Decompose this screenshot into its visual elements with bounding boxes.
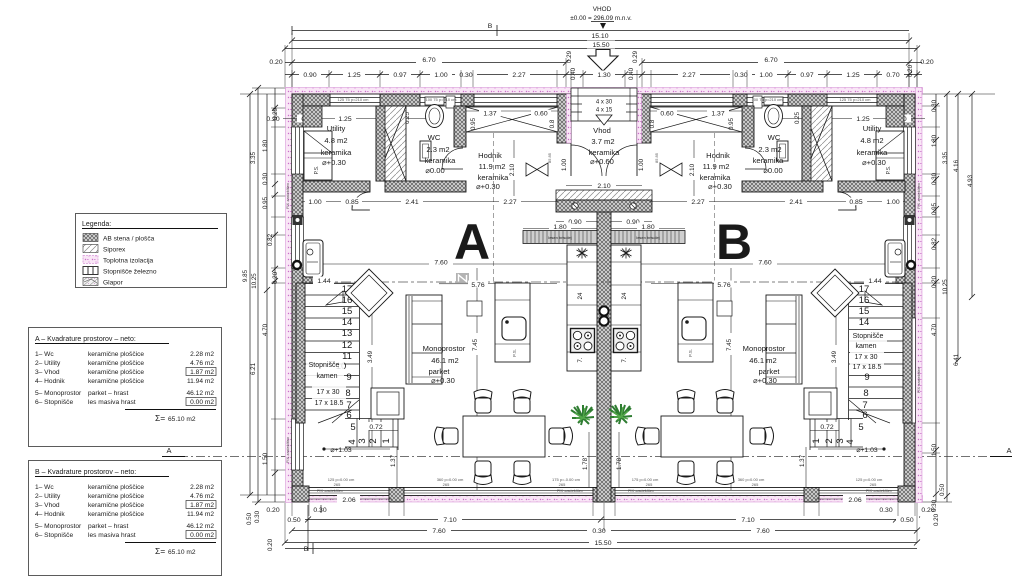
svg-text:1.50: 1.50 [262,452,269,465]
svg-text:keramika: keramika [857,148,889,157]
svg-text:0.50: 0.50 [939,483,946,496]
svg-text:2.27: 2.27 [691,199,704,206]
svg-text:0.95: 0.95 [262,196,269,209]
svg-text:1.44: 1.44 [868,278,881,285]
svg-text:0.8: 0.8 [649,119,656,128]
svg-text:P.S.: P.S. [688,349,693,357]
svg-text:Utility: Utility [327,124,346,133]
svg-text:0.60: 0.60 [534,111,547,118]
svg-text:14: 14 [859,317,870,328]
svg-text:0.25: 0.25 [794,111,801,124]
svg-text:⌀+0.30: ⌀+0.30 [708,182,732,191]
svg-text:0.30: 0.30 [931,172,938,185]
svg-text:A: A [454,214,490,270]
svg-text:0.40: 0.40 [628,67,635,80]
svg-text:2.3 m2: 2.3 m2 [426,145,449,154]
svg-text:1.37: 1.37 [711,111,724,118]
svg-text:⌀0.00: ⌀0.00 [425,166,444,175]
svg-text:6: 6 [862,410,867,421]
svg-text:15: 15 [859,306,870,317]
svg-text:WC: WC [768,133,781,142]
svg-text:1.37: 1.37 [483,111,496,118]
svg-text:B: B [488,23,493,30]
svg-text:1.87 m2: 1.87 m2 [190,369,214,376]
svg-text:1.30: 1.30 [597,72,610,79]
svg-text:3.35: 3.35 [250,151,257,164]
svg-text:Hodnik: Hodnik [706,151,730,160]
svg-text:4.76 m2: 4.76 m2 [190,493,214,500]
svg-text:1.80: 1.80 [931,134,938,147]
svg-text:2.27: 2.27 [503,199,516,206]
svg-text:1.00: 1.00 [561,158,568,171]
svg-text:parket: parket [428,367,450,376]
svg-text:keramične ploščice: keramične ploščice [88,351,144,358]
svg-text:FIX zasteklitev: FIX zasteklitev [317,488,343,493]
svg-text:1: 1 [811,438,822,443]
svg-text:⌀+0.60: ⌀+0.60 [590,157,614,166]
svg-text:FIX zasteklitev: FIX zasteklitev [916,367,921,393]
svg-text:3: 3 [357,438,368,443]
svg-text:10.25: 10.25 [942,279,949,295]
svg-text:2.10: 2.10 [509,163,516,176]
svg-text:1.80: 1.80 [641,224,654,231]
svg-text:lesen brisolej: lesen brisolej [636,235,659,240]
svg-text:1.00: 1.00 [759,72,772,79]
svg-text:17 x 30: 17 x 30 [317,389,340,396]
svg-text:2.41: 2.41 [405,199,418,206]
svg-text:Legenda:: Legenda: [82,221,111,228]
svg-text:±0.00 = 296.09 m.n.v.: ±0.00 = 296.09 m.n.v. [570,15,632,22]
svg-text:7.60: 7.60 [432,528,445,535]
svg-text:3: 3 [835,438,846,443]
svg-text:Toplotna izolacija: Toplotna izolacija [103,258,154,265]
svg-text:85 85: 85 85 [654,152,659,163]
svg-text:265: 265 [443,482,450,487]
svg-text:17 x 18.5: 17 x 18.5 [315,400,344,407]
svg-text:0.95: 0.95 [470,117,477,130]
svg-text:⌀+0.30: ⌀+0.30 [753,376,777,385]
svg-text:1.80: 1.80 [553,224,566,231]
svg-text:7.10: 7.10 [741,517,754,524]
svg-text:0.95: 0.95 [728,117,735,130]
svg-text:0.60: 0.60 [660,111,673,118]
svg-text:0.29: 0.29 [632,50,639,63]
svg-text:B: B [304,546,309,553]
svg-text:5: 5 [858,422,863,433]
svg-text:parket – hrast: parket – hrast [88,390,128,397]
svg-text:P.S.: P.S. [512,349,517,357]
svg-text:11.94 m2: 11.94 m2 [187,511,214,518]
svg-text:FIX zasteklitev: FIX zasteklitev [916,183,921,209]
svg-text:P.S.: P.S. [886,166,892,175]
svg-text:11.9 m2: 11.9 m2 [703,162,730,171]
svg-text:0.72: 0.72 [369,424,382,431]
svg-text:5: 5 [350,422,355,433]
svg-text:parket – hrast: parket – hrast [88,523,128,530]
svg-text:Vhod: Vhod [593,126,611,135]
svg-text:keramične ploščice: keramične ploščice [88,369,144,376]
svg-text:les masiva hrast: les masiva hrast [88,399,136,406]
svg-text:1: 1 [381,438,392,443]
svg-text:3.35: 3.35 [942,151,949,164]
svg-text:1.25: 1.25 [338,116,351,123]
svg-text:AB stena / plošča: AB stena / plošča [103,236,155,243]
svg-text:6– Stopnišče: 6– Stopnišče [35,399,73,406]
svg-text:Utility: Utility [863,124,882,133]
svg-text:46.1 m2: 46.1 m2 [431,356,458,365]
svg-text:0.90: 0.90 [303,72,316,79]
svg-text:⌀0.00: ⌀0.00 [763,166,782,175]
svg-text:1.80: 1.80 [262,139,269,152]
svg-text:keramika: keramika [425,156,457,165]
svg-text:10.25: 10.25 [251,273,258,289]
svg-text:keramika: keramika [753,156,785,165]
svg-text:265: 265 [559,482,566,487]
svg-text:125 75 p=210 cm: 125 75 p=210 cm [337,97,369,102]
svg-text:6.70: 6.70 [422,57,435,64]
svg-text:2: 2 [368,438,379,443]
svg-text:keramične ploščice: keramične ploščice [88,493,144,500]
svg-text:1.87 m2: 1.87 m2 [190,502,214,509]
svg-text:1.25: 1.25 [347,72,360,79]
svg-text:3– Vhod: 3– Vhod [35,369,60,376]
svg-text:0.29: 0.29 [566,50,573,63]
svg-text:100 75 p=210 cm: 100 75 p=210 cm [751,97,783,102]
svg-text:lesen brisolej: lesen brisolej [548,235,571,240]
svg-text:B: B [716,214,752,270]
svg-text:Stopnišče železno: Stopnišče železno [103,269,157,276]
svg-text:2– Utility: 2– Utility [35,493,61,500]
svg-text:P.S.: P.S. [314,166,320,175]
svg-text:0.20: 0.20 [933,513,940,526]
svg-text:1– Wc: 1– Wc [35,351,54,358]
svg-text:keramične ploščice: keramične ploščice [88,484,144,491]
svg-text:0.20: 0.20 [272,271,279,284]
svg-text:9: 9 [864,372,869,383]
svg-text:65.10 m2: 65.10 m2 [168,416,196,423]
svg-text:15.50: 15.50 [592,42,609,49]
svg-text:0.50: 0.50 [246,512,253,525]
svg-text:⌀+0.30: ⌀+0.30 [862,158,886,167]
svg-text:1.00: 1.00 [886,199,899,206]
svg-text:6– Stopnišče: 6– Stopnišče [35,532,73,539]
svg-text:VHOD: VHOD [593,6,612,13]
svg-text:2.27: 2.27 [682,72,695,79]
svg-text:265: 265 [870,482,877,487]
svg-text:⌀+1.03: ⌀+1.03 [330,447,352,454]
svg-text:1.00: 1.00 [638,158,645,171]
svg-text:46.12 m2: 46.12 m2 [187,523,215,530]
svg-text:7.: 7. [577,357,584,362]
svg-text:5– Monoprostor: 5– Monoprostor [35,390,82,397]
svg-text:0.30: 0.30 [931,99,938,112]
svg-text:Hodnik: Hodnik [478,151,502,160]
svg-text:WC: WC [428,133,441,142]
svg-text:0.82: 0.82 [267,233,274,246]
svg-text:2.06: 2.06 [848,497,861,504]
svg-text:0.20: 0.20 [267,538,274,551]
svg-text:0.85: 0.85 [345,199,358,206]
svg-text:7.45: 7.45 [726,338,733,351]
svg-text:17 x 18.5: 17 x 18.5 [853,364,882,371]
svg-text:A – Kvadrature prostorov – net: A – Kvadrature prostorov – neto: [35,336,136,343]
svg-text:Glapor: Glapor [103,280,124,287]
svg-text:4.8 m2: 4.8 m2 [860,136,883,145]
svg-text:1.00: 1.00 [308,199,321,206]
svg-text:6: 6 [346,410,351,421]
svg-text:2.10: 2.10 [689,163,696,176]
svg-text:17 x 30: 17 x 30 [855,354,878,361]
svg-text:4.8 m2: 4.8 m2 [324,136,347,145]
svg-text:65.10 m2: 65.10 m2 [168,549,196,556]
svg-text:12: 12 [342,340,353,351]
svg-text:0.20: 0.20 [266,116,279,123]
svg-text:4 x 30: 4 x 30 [596,100,613,106]
svg-text:Stopnišče: Stopnišče [853,333,884,340]
svg-text:keramične ploščice: keramične ploščice [88,511,144,518]
svg-text:0.30: 0.30 [254,510,261,523]
svg-text:2.3 m2: 2.3 m2 [758,145,781,154]
svg-text:46.12 m2: 46.12 m2 [187,390,215,397]
svg-text:15.50: 15.50 [594,540,611,547]
svg-text:Monoprostor: Monoprostor [743,344,786,353]
svg-text:24: 24 [621,292,628,299]
svg-text:0.8: 0.8 [549,119,556,128]
svg-text:keramika: keramika [589,148,621,157]
svg-text:7.10: 7.10 [443,517,456,524]
svg-text:17: 17 [859,284,870,295]
svg-text:4 x 15: 4 x 15 [596,108,613,114]
svg-text:6.21: 6.21 [250,362,257,375]
svg-text:3.7 m2: 3.7 m2 [591,137,614,146]
svg-text:0.20: 0.20 [921,507,934,514]
svg-text:7.60: 7.60 [756,528,769,535]
svg-text:4.93: 4.93 [967,174,974,187]
svg-text:keramika: keramika [700,173,732,182]
svg-text:⌀+1.03: ⌀+1.03 [856,447,878,454]
svg-text:15.10: 15.10 [591,33,608,40]
svg-text:13: 13 [342,328,353,339]
svg-text:1– Wc: 1– Wc [35,484,54,491]
svg-text:0.20: 0.20 [907,64,914,77]
svg-text:7.60: 7.60 [434,260,447,267]
svg-text:9: 9 [346,372,351,383]
svg-text:5.76: 5.76 [717,282,730,289]
svg-text:parket: parket [758,367,780,376]
svg-text:7.45: 7.45 [472,338,479,351]
svg-text:2– Utility: 2– Utility [35,360,61,367]
svg-text:keramične ploščice: keramične ploščice [88,378,144,385]
svg-text:2.27: 2.27 [512,72,525,79]
svg-text:3– Vhod: 3– Vhod [35,502,60,509]
svg-text:keramika: keramika [321,148,353,157]
svg-text:0.30: 0.30 [262,172,269,185]
svg-text:4: 4 [845,439,856,444]
svg-text:7.: 7. [621,357,628,362]
svg-text:Σ=: Σ= [155,546,165,556]
svg-text:Siporex: Siporex [103,247,126,254]
svg-text:11.9 m2: 11.9 m2 [479,162,506,171]
svg-text:125 75 p=210 cm: 125 75 p=210 cm [839,97,871,102]
svg-text:2.41: 2.41 [789,199,802,206]
svg-text:B – Kvadrature prostorov – net: B – Kvadrature prostorov – neto: [35,469,136,476]
svg-text:0.72: 0.72 [820,424,833,431]
svg-text:265: 265 [646,482,653,487]
svg-text:0.20: 0.20 [269,59,282,66]
svg-text:FIX zasteklitev: FIX zasteklitev [628,488,654,493]
svg-text:100 75 p=210 cm: 100 75 p=210 cm [425,97,457,102]
svg-text:0.82: 0.82 [931,237,938,250]
svg-text:2: 2 [824,438,835,443]
svg-text:FIX zasteklitev: FIX zasteklitev [285,183,290,209]
svg-text:175 p=-0.00 cm: 175 p=-0.00 cm [552,477,581,482]
svg-text:⌀+0.30: ⌀+0.30 [476,182,500,191]
svg-text:0.50: 0.50 [900,517,913,524]
svg-text:0.85: 0.85 [849,199,862,206]
svg-text:265: 265 [752,482,759,487]
svg-text:1.37: 1.37 [390,454,397,467]
svg-text:⌀+0.30: ⌀+0.30 [322,158,346,167]
svg-text:265: 265 [334,482,341,487]
svg-text:4– Hodnik: 4– Hodnik [35,511,65,518]
svg-text:125 p=0.00 cm: 125 p=0.00 cm [328,477,355,482]
svg-text:24: 24 [577,292,584,299]
svg-text:3.49: 3.49 [831,350,838,363]
svg-text:4.76 m2: 4.76 m2 [190,360,214,367]
svg-text:15: 15 [342,306,353,317]
svg-text:2.28 m2: 2.28 m2 [190,351,214,358]
svg-text:2.06: 2.06 [342,497,355,504]
svg-text:11.94 m2: 11.94 m2 [187,378,214,385]
svg-text:0.20: 0.20 [920,59,933,66]
svg-text:0.30: 0.30 [313,507,326,514]
svg-text:0.50: 0.50 [287,517,300,524]
svg-text:1.50: 1.50 [931,443,938,456]
svg-text:0.30: 0.30 [879,507,892,514]
svg-text:2.28 m2: 2.28 m2 [190,484,214,491]
svg-text:2.10: 2.10 [597,183,610,190]
svg-text:6.70: 6.70 [764,57,777,64]
svg-text:8: 8 [863,388,868,399]
svg-text:1.44: 1.44 [317,278,330,285]
svg-text:0.30: 0.30 [734,72,747,79]
svg-text:0.97: 0.97 [800,72,813,79]
svg-text:A: A [1006,446,1011,455]
svg-text:360 p=0.00 cm: 360 p=0.00 cm [437,477,464,482]
svg-text:⌀+0.30: ⌀+0.30 [431,376,455,385]
svg-text:4.70: 4.70 [262,323,269,336]
svg-text:keramične ploščice: keramične ploščice [88,360,144,367]
svg-text:0.30: 0.30 [459,72,472,79]
svg-text:46.1 m2: 46.1 m2 [749,356,776,365]
svg-text:1.25: 1.25 [856,116,869,123]
svg-text:FIX zasteklitev: FIX zasteklitev [866,488,892,493]
svg-text:1.25: 1.25 [846,72,859,79]
svg-text:0.00 m2: 0.00 m2 [190,399,214,406]
svg-text:0.20: 0.20 [931,275,938,288]
svg-text:1.00: 1.00 [434,72,447,79]
svg-text:4.70: 4.70 [931,323,938,336]
svg-text:1.78: 1.78 [582,457,589,470]
svg-text:4.16: 4.16 [953,159,960,172]
svg-text:5.76: 5.76 [471,282,484,289]
svg-text:FIX zasteklitev: FIX zasteklitev [285,437,290,463]
svg-text:1.37: 1.37 [799,454,806,467]
svg-text:9.85: 9.85 [242,269,249,282]
svg-text:les masiva hrast: les masiva hrast [88,532,136,539]
svg-text:14: 14 [342,317,353,328]
svg-text:0.97: 0.97 [393,72,406,79]
svg-text:5– Monoprostor: 5– Monoprostor [35,523,82,530]
svg-text:0.70: 0.70 [886,72,899,79]
svg-text:Monoprostor: Monoprostor [423,344,466,353]
svg-text:3.49: 3.49 [367,350,374,363]
svg-text:7.60: 7.60 [758,260,771,267]
svg-text:85 85: 85 85 [547,152,552,163]
svg-text:0.20: 0.20 [266,507,279,514]
svg-text:8: 8 [345,388,350,399]
svg-text:Σ=: Σ= [155,413,165,423]
svg-text:kamen: kamen [855,343,876,350]
svg-text:16: 16 [859,295,870,306]
svg-text:A: A [166,446,171,455]
svg-text:0.95: 0.95 [931,202,938,215]
svg-text:0.00 m2: 0.00 m2 [190,532,214,539]
svg-text:FIX zasteklitev: FIX zasteklitev [557,488,583,493]
svg-text:6.41: 6.41 [953,353,960,366]
svg-text:Stopnišče: Stopnišče [309,362,340,369]
svg-text:keramične ploščice: keramične ploščice [88,502,144,509]
svg-text:4– Hodnik: 4– Hodnik [35,378,65,385]
svg-text:1.78: 1.78 [616,457,623,470]
svg-text:kamen: kamen [316,373,337,380]
